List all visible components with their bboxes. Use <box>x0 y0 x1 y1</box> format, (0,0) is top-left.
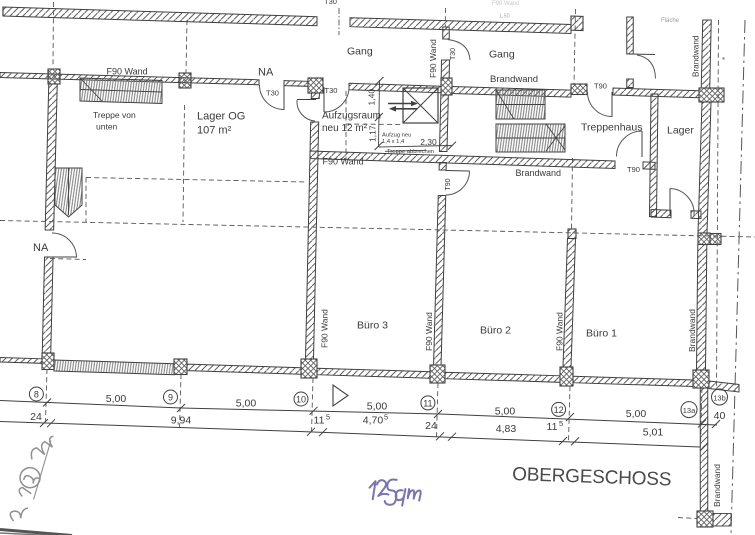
svg-text:Fläche: Fläche <box>661 18 680 24</box>
svg-text:Büro 1: Büro 1 <box>586 328 617 340</box>
svg-text:1,17: 1,17 <box>368 125 378 142</box>
svg-text:40: 40 <box>714 410 726 422</box>
svg-text:F90 Wand: F90 Wand <box>428 39 438 78</box>
svg-text:12: 12 <box>554 405 564 415</box>
svg-text:F90 Wand: F90 Wand <box>492 1 519 7</box>
svg-text:neu 12 m²: neu 12 m² <box>322 123 368 134</box>
svg-text:Brandwand: Brandwand <box>712 464 722 507</box>
svg-text:T30: T30 <box>450 48 457 60</box>
svg-text:11: 11 <box>314 415 325 427</box>
svg-text:9,94: 9,94 <box>171 415 192 427</box>
svg-text:8: 8 <box>34 389 39 399</box>
svg-text:F90 Wand: F90 Wand <box>320 309 330 348</box>
svg-text:unten: unten <box>96 122 118 132</box>
svg-text:Brandwand: Brandwand <box>516 168 562 178</box>
svg-text:Treppe von: Treppe von <box>93 110 136 120</box>
svg-text:107 m²: 107 m² <box>197 125 232 137</box>
svg-text:2,30: 2,30 <box>420 137 437 147</box>
svg-text:5,01: 5,01 <box>643 427 664 439</box>
svg-text:T30: T30 <box>324 0 337 6</box>
svg-text:4,70: 4,70 <box>363 415 384 427</box>
svg-text:Aufzugsraum: Aufzugsraum <box>322 111 381 122</box>
svg-text:Büro 2: Büro 2 <box>480 325 511 337</box>
svg-text:13b: 13b <box>713 393 726 402</box>
svg-text:11: 11 <box>423 398 432 408</box>
svg-text:5,00: 5,00 <box>236 398 257 410</box>
svg-text:9: 9 <box>168 392 173 402</box>
svg-text:1,50: 1,50 <box>499 14 510 20</box>
svg-text:Treppenhaus: Treppenhaus <box>581 122 643 134</box>
svg-text:5,00: 5,00 <box>367 401 388 413</box>
svg-text:F90 Wand: F90 Wand <box>555 312 565 351</box>
svg-text:13a: 13a <box>683 406 696 415</box>
svg-text:24: 24 <box>425 420 437 432</box>
svg-text:24: 24 <box>30 411 42 423</box>
svg-text:5,00: 5,00 <box>106 393 127 405</box>
svg-text:Brandwand: Brandwand <box>687 309 697 352</box>
svg-text:Brandwand: Brandwand <box>692 35 701 77</box>
svg-text:F90 Wand: F90 Wand <box>107 67 148 77</box>
svg-text:Lager: Lager <box>667 125 694 137</box>
svg-text:NA: NA <box>258 67 274 79</box>
svg-text:Gang: Gang <box>489 49 515 61</box>
svg-text:11: 11 <box>547 421 558 433</box>
svg-text:1,40: 1,40 <box>367 89 377 106</box>
svg-text:4,83: 4,83 <box>496 423 517 435</box>
svg-text:T30: T30 <box>266 89 279 98</box>
svg-text:Lager OG: Lager OG <box>197 111 245 123</box>
svg-text:10: 10 <box>296 394 306 404</box>
svg-text:Brandwand: Brandwand <box>490 74 538 85</box>
svg-text:5,00: 5,00 <box>495 406 516 418</box>
svg-text:T90: T90 <box>445 178 452 190</box>
svg-text:T30: T30 <box>325 86 338 95</box>
svg-text:F90 Wand: F90 Wand <box>323 157 364 167</box>
svg-text:5: 5 <box>326 413 330 422</box>
svg-text:5,00: 5,00 <box>626 408 647 420</box>
svg-text:Aufzug neu: Aufzug neu <box>382 133 411 139</box>
svg-text:T90: T90 <box>627 165 640 174</box>
svg-text:1,4 x 1,4: 1,4 x 1,4 <box>382 139 405 145</box>
svg-text:5: 5 <box>559 419 563 428</box>
svg-text:Treppe abbrechen: Treppe abbrechen <box>387 149 434 155</box>
svg-text:5: 5 <box>384 413 388 422</box>
svg-text:F90 Wand: F90 Wand <box>424 312 434 351</box>
svg-text:Büro 3: Büro 3 <box>357 320 388 332</box>
svg-text:NA: NA <box>33 242 49 254</box>
svg-text:Gang: Gang <box>347 46 373 58</box>
svg-text:T90: T90 <box>594 82 607 91</box>
